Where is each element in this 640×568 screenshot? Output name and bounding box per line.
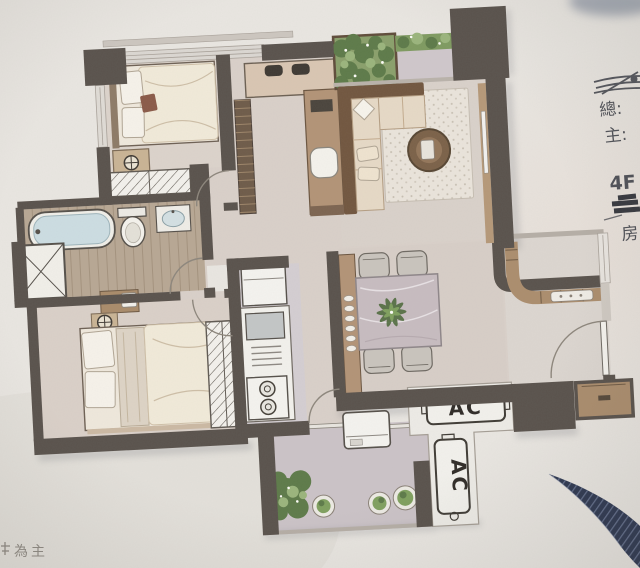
floorplan-photo: AC AC: [0, 0, 640, 568]
photo-artifacts: [0, 0, 640, 568]
vignette: [0, 0, 640, 568]
floorplan-svg: AC AC: [0, 0, 640, 568]
